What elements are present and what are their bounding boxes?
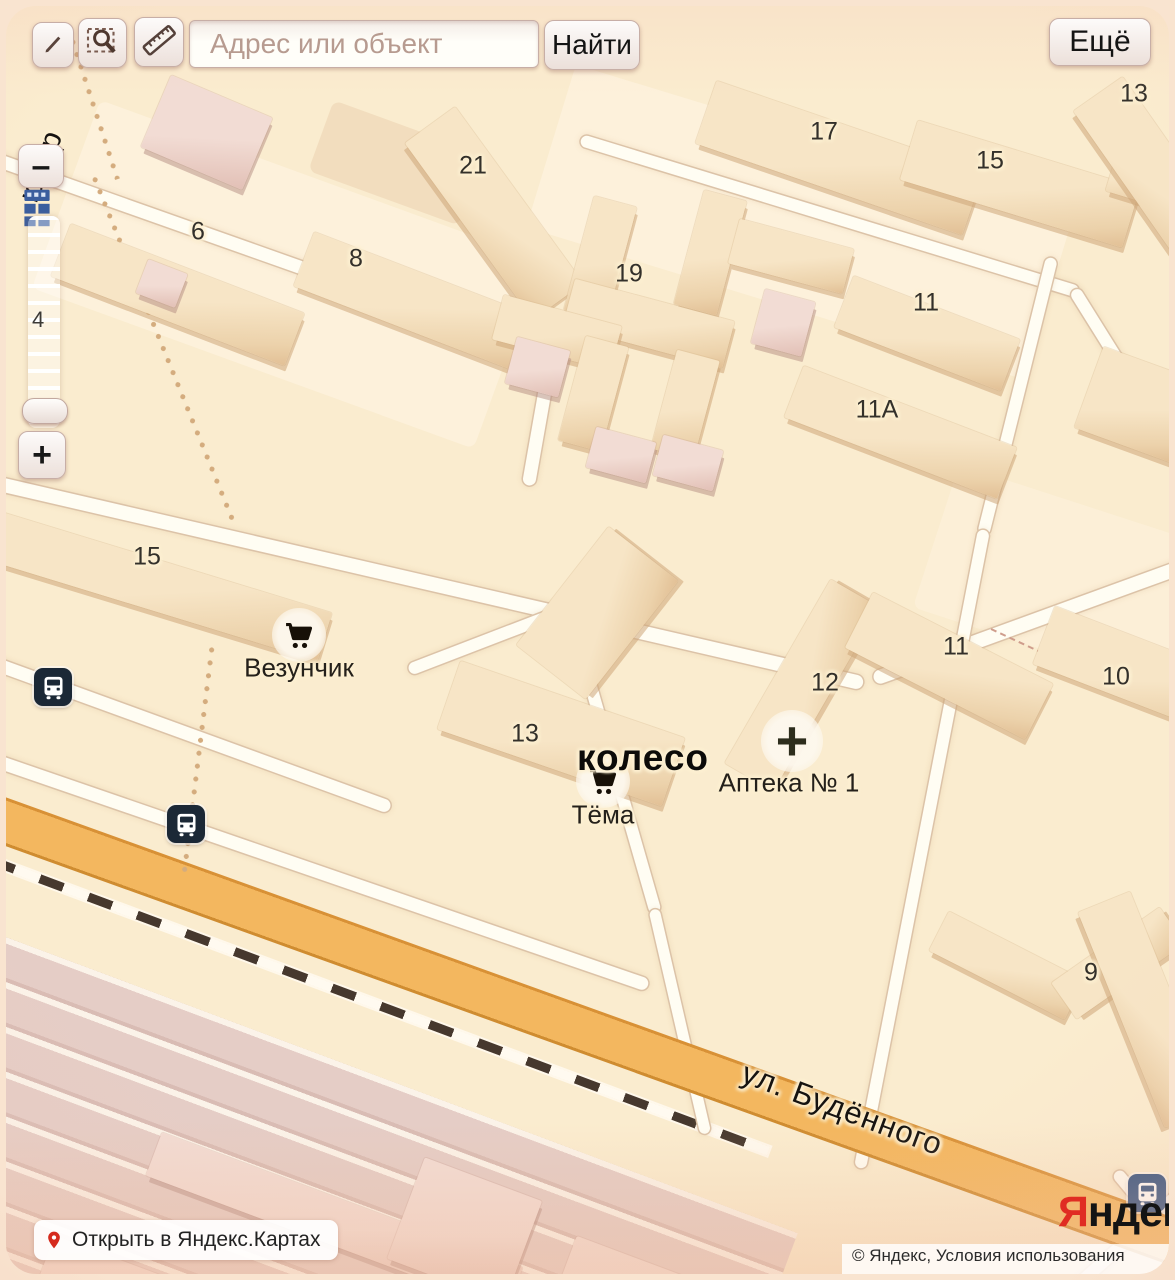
building-number-label: 8 bbox=[349, 245, 363, 274]
building-block-pink bbox=[586, 427, 657, 484]
building-number-label: 17 bbox=[810, 118, 838, 147]
ruler-icon bbox=[140, 21, 178, 64]
copyright-text: © Яндекс, bbox=[852, 1246, 936, 1265]
yandex-logo[interactable]: Яндекс bbox=[1058, 1188, 1169, 1237]
zoom-in-button[interactable]: + bbox=[18, 431, 66, 479]
search-input[interactable] bbox=[189, 20, 539, 68]
bus-stop-icon[interactable] bbox=[34, 668, 72, 706]
road bbox=[649, 908, 711, 1135]
logo-letter: Я bbox=[1058, 1188, 1088, 1236]
building-number-label: 19 bbox=[615, 260, 643, 289]
building-number-label: 15 bbox=[133, 543, 161, 572]
ruler-button[interactable] bbox=[134, 17, 184, 67]
magnifier-select-button[interactable] bbox=[78, 18, 127, 68]
terms-of-use-link[interactable]: Условия использования bbox=[936, 1246, 1125, 1265]
building-number-label: 15 bbox=[976, 147, 1004, 176]
pharmacy-cross-icon[interactable]: + bbox=[761, 710, 823, 772]
building-block bbox=[784, 366, 1017, 499]
building-number-label: 6 bbox=[191, 218, 205, 247]
bus-stop-icon[interactable] bbox=[167, 805, 205, 843]
building-number-label: 13 bbox=[1120, 80, 1148, 109]
open-in-label: Открыть в Яндекс.Картах bbox=[72, 1228, 320, 1252]
building-block bbox=[437, 661, 685, 806]
zoom-slider-handle[interactable] bbox=[22, 398, 68, 424]
open-in-yandex-maps-button[interactable]: Открыть в Яндекс.Картах bbox=[34, 1220, 338, 1260]
map-pin-icon bbox=[44, 1230, 64, 1250]
poi-label[interactable]: Везунчик bbox=[244, 653, 354, 684]
more-button[interactable]: Ещё bbox=[1049, 18, 1151, 66]
building-number-label: 11А bbox=[856, 396, 899, 425]
poi-label[interactable]: Тёма bbox=[572, 800, 635, 831]
poi-label[interactable]: колесо bbox=[577, 737, 709, 779]
pencil-icon bbox=[39, 29, 67, 62]
building-number-label: 11 bbox=[913, 289, 939, 318]
building-number-label: 21 bbox=[459, 152, 487, 181]
building-number-label: 12 bbox=[811, 669, 839, 698]
building-number-label: 11 bbox=[943, 633, 969, 662]
map-canvas[interactable]: 6821171513191111А15131211109юхерул. Будё… bbox=[6, 6, 1169, 1274]
zoom-out-button[interactable]: – bbox=[18, 144, 64, 188]
building-number-label: 9 bbox=[1084, 959, 1098, 988]
building-number-label: 13 bbox=[511, 720, 539, 749]
draw-route-button[interactable] bbox=[32, 22, 74, 68]
building-number-label: 10 bbox=[1102, 663, 1130, 692]
logo-rest: ндекс bbox=[1088, 1188, 1169, 1236]
find-button[interactable]: Найти bbox=[544, 20, 640, 70]
poi-label[interactable]: Аптека № 1 bbox=[719, 768, 860, 799]
search-area-icon bbox=[85, 23, 121, 64]
building-block-pink bbox=[653, 435, 724, 492]
copyright-bar: © Яндекс, Условия использования bbox=[842, 1244, 1169, 1274]
building-block bbox=[516, 527, 678, 699]
building-block bbox=[929, 911, 1084, 1019]
search-box bbox=[189, 20, 539, 68]
zoom-scale-label: 4 bbox=[32, 307, 44, 333]
building-block bbox=[1074, 347, 1169, 463]
